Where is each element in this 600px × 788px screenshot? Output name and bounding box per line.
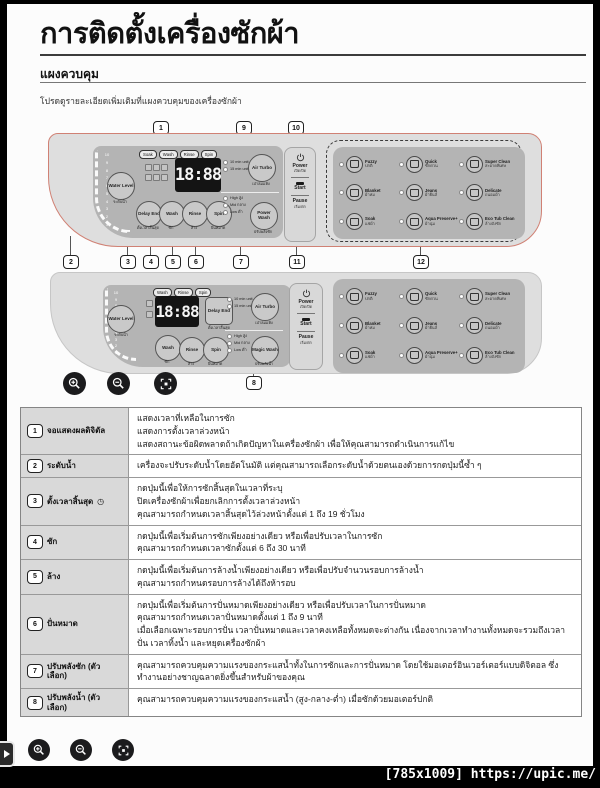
program-icon: [406, 317, 423, 334]
led-item: Mid กลาง: [223, 203, 246, 208]
start-pause-sub: เริ่ม/พัก: [294, 206, 306, 210]
section-divider: [40, 82, 586, 83]
program-icon: [406, 288, 423, 305]
program-sub: ผ้านุ่ม: [425, 355, 458, 359]
led-dot: [459, 323, 464, 328]
control-description: กดปุ่มนี้เพื่อเริ่มต้นการล้างน้ำเพียงอย่…: [129, 560, 581, 594]
led-item: 10 min unit: [227, 297, 253, 302]
program-button: Delicateถนอมผ้า: [459, 184, 519, 201]
led-dot: [459, 353, 464, 358]
led-item: 15 min unit: [227, 304, 253, 309]
callout-badge: 6: [27, 617, 43, 631]
program-sub: ผ้ายีนส์: [425, 193, 437, 197]
program-button: Soakแช่ผ้า: [339, 213, 399, 230]
program-sub: ปกติ: [365, 164, 377, 168]
zoom-out-button-bottom[interactable]: [70, 739, 92, 761]
led-dot: [399, 294, 404, 299]
water-level-number: 10: [114, 291, 118, 295]
control-divider: [221, 192, 279, 193]
rinse-sub: ล้าง: [179, 362, 203, 366]
watermark: [785x1009] https://upic.me/: [385, 767, 596, 782]
water-level-number: 3: [115, 338, 117, 342]
control-name: ล้าง: [47, 572, 60, 582]
table-row: 2 ระดับน้ำ เครื่องจะปรับระดับน้ำโดยอัตโน…: [21, 454, 581, 477]
control-area: 10987654321 Water Level ระดับน้ำ WashRin…: [103, 285, 291, 367]
led-item: Mid กลาง: [227, 341, 250, 346]
start-divider: [291, 195, 309, 196]
program-button: Super Cleanสะอาดพิเศษ: [459, 288, 519, 305]
table-row: 7 ปรับพลังซัก (ตัวเลือก) คุณสามารถควบคุม…: [21, 654, 581, 689]
image-viewer: การติดตั้งเครื่องซักผ้า แผงควบคุม โปรดดู…: [0, 0, 600, 788]
fit-screen-icon: [117, 744, 130, 757]
table-row: 6 ปั่นหมาด กดปุ่มนี้เพื่อเริ่มต้นการปั่น…: [21, 594, 581, 654]
air-turbo-sub: เป่าลมแห้ง: [243, 182, 279, 186]
table-row: 1 จอแสดงผลดิจิตัล แสดงเวลาที่เหลือในการซ…: [21, 408, 581, 454]
water-level-number: 3: [106, 207, 108, 211]
program-sub: ล้างถังซัก: [485, 355, 515, 359]
fit-screen-icon: [159, 377, 173, 391]
program-icon: [406, 213, 423, 230]
program-icon: [406, 156, 423, 173]
program-button: Blanketผ้าห่ม: [339, 317, 399, 334]
control-name: ซัก: [47, 537, 57, 547]
wash-sub: ซัก: [155, 360, 179, 364]
program-icon: [346, 317, 363, 334]
zoom-out-icon: [111, 376, 126, 391]
water-level-number: 2: [106, 215, 108, 219]
rinse-sub: ล้าง: [182, 226, 206, 230]
zoom-in-button[interactable]: [63, 372, 86, 395]
water-level-sub: ระดับน้ำ: [103, 333, 139, 337]
water-level-number: 10: [105, 153, 109, 157]
callout-8: 8: [246, 376, 262, 390]
status-pill: Soak: [139, 150, 157, 159]
callout-badge: 4: [27, 535, 43, 549]
indicator-icon: [161, 174, 168, 181]
table-label-cell: 8 ปรับพลังน้ำ (ตัวเลือก): [21, 689, 129, 716]
spin-sub: ปั่นหมาด: [202, 362, 228, 366]
led-dot: [339, 190, 344, 195]
magic-wash-button: Magic Wash: [251, 336, 279, 364]
program-sub: ซักด่วน: [425, 164, 438, 168]
program-button: Blanketผ้าห่ม: [339, 184, 399, 201]
zoom-in-icon: [67, 376, 82, 391]
led-dot: [399, 162, 404, 167]
callout-line: [70, 236, 71, 255]
power-sub: เปิด/ปิด: [300, 306, 312, 310]
indicator-icons: [146, 300, 151, 318]
callout-badge: 3: [27, 494, 43, 508]
program-sub: ผ้านุ่ม: [425, 222, 458, 226]
callout-3: 3: [120, 255, 136, 269]
led-label: 10 min unit: [234, 298, 253, 302]
table-row: 4 ซัก กดปุ่มนี้เพื่อเริ่มต้นการซักเพียงอ…: [21, 525, 581, 560]
callout-4: 4: [143, 255, 159, 269]
led-dot: [227, 341, 232, 346]
led-item: 15 min unit: [223, 167, 249, 172]
callout-badge: 5: [27, 570, 43, 584]
power-icon: [296, 153, 305, 162]
rinse-button: Rinse: [179, 337, 205, 363]
magic-wash-sub: ปรับพลังน้ำ: [247, 362, 281, 366]
program-icon: [346, 347, 363, 364]
program-icon: [466, 156, 483, 173]
table-label-cell: 7 ปรับพลังซัก (ตัวเลือก): [21, 655, 129, 689]
indicator-icons: [145, 164, 166, 181]
led-item: Low ต่ำ: [223, 210, 246, 215]
program-button: Fuzzyปกติ: [339, 288, 399, 305]
led-dot: [223, 210, 228, 215]
fit-screen-button-bottom[interactable]: [112, 739, 134, 761]
water-level-number: 2: [115, 344, 117, 348]
table-label-cell: 1 จอแสดงผลดิจิตัล: [21, 408, 129, 454]
fit-screen-button[interactable]: [154, 372, 177, 395]
water-level-number: 8: [106, 169, 108, 173]
program-button: Quickซักด่วน: [399, 156, 459, 173]
air-turbo-leds: 10 min unit15 min unit: [223, 160, 249, 172]
callout-11: 11: [289, 255, 305, 269]
program-sub: ผ้าห่ม: [365, 326, 381, 330]
control-description: แสดงเวลาที่เหลือในการซัก แสดงการตั้งเวลา…: [129, 408, 581, 454]
manual-page: การติดตั้งเครื่องซักผ้า แผงควบคุม โปรดดู…: [7, 4, 593, 766]
control-name: ปรับพลังซัก (ตัวเลือก): [47, 662, 120, 681]
indicator-icon: [145, 164, 152, 171]
led-dot: [223, 203, 228, 208]
control-name: ระดับน้ำ: [47, 461, 76, 471]
program-button: Eco Tub Cleanล้างถังซัก: [459, 213, 519, 230]
program-sub: แช่ผ้า: [365, 355, 375, 359]
power-section: Power เปิด/ปิด Start Pause เริ่ม/พัก: [289, 283, 323, 370]
air-turbo-button: Air Turbo: [251, 293, 279, 321]
program-button: Eco Tub Cleanล้างถังซัก: [459, 347, 519, 364]
callout-7: 7: [233, 255, 249, 269]
callout-6: 6: [188, 255, 204, 269]
control-description: คุณสามารถควบคุมความแรงของกระแสน้ำ (สูง-ก…: [129, 689, 581, 716]
control-panel-diagram-1: 10987654321 Water Level ระดับน้ำ SoakWas…: [48, 133, 542, 247]
program-icon: [346, 288, 363, 305]
title-divider: [40, 54, 586, 56]
program-button: Jeansผ้ายีนส์: [399, 184, 459, 201]
led-item: 10 min unit: [223, 160, 249, 165]
table-label-cell: 3 ตั้งเวลาสิ้นสุด ◷: [21, 478, 129, 524]
start-divider: [297, 331, 315, 332]
program-icon: [406, 347, 423, 364]
program-sub: ผ้ายีนส์: [425, 326, 437, 330]
air-turbo-leds: 10 min unit15 min unit: [227, 297, 253, 309]
spin-sub: ปั่นหมาด: [205, 226, 231, 230]
led-dot: [459, 162, 464, 167]
led-dot: [227, 304, 232, 309]
digital-display: 18:88: [175, 158, 221, 192]
pause-label: Pause: [299, 335, 314, 340]
intro-text: โปรดดูรายละเอียดเพิ่มเติมที่แผงควบคุมของ…: [40, 94, 242, 108]
indicator-icon: [145, 174, 152, 181]
magic-wash-leds: High สูงMid กลางLow ต่ำ: [227, 334, 250, 353]
program-icon: [406, 184, 423, 201]
program-button: Quickซักด่วน: [399, 288, 459, 305]
led-item: Low ต่ำ: [227, 348, 250, 353]
control-description: คุณสามารถควบคุมความแรงของกระแสน้ำทั้งในก…: [129, 655, 581, 689]
wash-sub: ซัก: [159, 226, 183, 230]
led-dot: [399, 190, 404, 195]
program-sub: แช่ผ้า: [365, 222, 375, 226]
water-level-button: Water Level: [107, 305, 135, 333]
table-label-cell: 4 ซัก: [21, 526, 129, 560]
water-level-button: Water Level: [107, 172, 135, 200]
led-item: High สูง: [223, 196, 246, 201]
program-button: Super Cleanสะอาดพิเศษ: [459, 156, 519, 173]
program-sub: ซักด่วน: [425, 297, 438, 301]
clock-icon: ◷: [97, 497, 104, 506]
power-wash-leds: High สูงMid กลางLow ต่ำ: [223, 196, 246, 215]
program-button: Delicateถนอมผ้า: [459, 317, 519, 334]
program-grid: Fuzzyปกติ Quickซักด่วน Super Cleanสะอาดพ…: [333, 279, 525, 373]
led-dot: [399, 219, 404, 224]
program-button: Aqua Preserve+ผ้านุ่ม: [399, 213, 459, 230]
program-icon: [466, 317, 483, 334]
callout-badge: 7: [27, 664, 43, 678]
program-grid: Fuzzyปกติ Quickซักด่วน Super Cleanสะอาดพ…: [333, 147, 525, 239]
program-icon: [466, 184, 483, 201]
program-sub: สะอาดพิเศษ: [485, 297, 510, 301]
digital-display: 18:88: [155, 296, 199, 327]
program-icon: [346, 156, 363, 173]
program-button: Soakแช่ผ้า: [339, 347, 399, 364]
callout-12: 12: [413, 255, 429, 269]
table-row: 3 ตั้งเวลาสิ้นสุด ◷ กดปุ่มนี้เพื่อให้การ…: [21, 477, 581, 524]
indicator-icon: [153, 164, 160, 171]
controls-description-table: 1 จอแสดงผลดิจิตัล แสดงเวลาที่เหลือในการซ…: [20, 407, 582, 717]
start-pause-sub: เริ่ม/พัก: [300, 342, 312, 346]
program-sub: ล้างถังซัก: [485, 222, 515, 226]
program-icon: [466, 213, 483, 230]
status-pill: Wash: [159, 150, 178, 159]
table-row: 5 ล้าง กดปุ่มนี้เพื่อเริ่มต้นการล้างน้ำเ…: [21, 559, 581, 594]
control-name: จอแสดงผลดิจิตัล: [47, 426, 105, 436]
led-dot: [223, 160, 228, 165]
table-label-cell: 2 ระดับน้ำ: [21, 455, 129, 477]
led-dot: [227, 297, 232, 302]
water-level-sub: ระดับน้ำ: [99, 200, 141, 204]
rinse-button: Rinse: [182, 201, 208, 227]
led-dot: [339, 162, 344, 167]
callout-badge: 8: [27, 696, 43, 710]
zoom-out-button[interactable]: [107, 372, 130, 395]
power-sub: เปิด/ปิด: [294, 170, 306, 174]
table-label-cell: 5 ล้าง: [21, 560, 129, 594]
start-label: Start: [300, 322, 311, 327]
program-icon: [346, 184, 363, 201]
callout-2: 2: [63, 255, 79, 269]
program-button: Fuzzyปกติ: [339, 156, 399, 173]
zoom-in-icon: [32, 743, 46, 757]
program-sub: ผ้าห่ม: [365, 193, 381, 197]
led-label: Mid กลาง: [234, 342, 250, 346]
water-level-number: 1: [115, 351, 117, 355]
control-name: ปั่นหมาด: [47, 619, 78, 629]
led-label: 15 min unit: [234, 305, 253, 309]
led-dot: [339, 353, 344, 358]
indicator-icon: [146, 300, 153, 307]
control-divider: [225, 330, 283, 331]
callout-badge: 1: [27, 424, 43, 438]
program-icon: [466, 288, 483, 305]
indicator-icon: [146, 311, 153, 318]
led-dot: [459, 190, 464, 195]
led-dot: [399, 323, 404, 328]
power-divider: [297, 313, 315, 314]
led-label: 15 min unit: [230, 168, 249, 172]
program-icon: [466, 347, 483, 364]
zoom-out-icon: [74, 743, 88, 757]
start-label: Start: [294, 186, 305, 191]
control-panel-diagram-2: 10987654321 Water Level ระดับน้ำ WashRin…: [50, 272, 542, 374]
table-label-cell: 6 ปั่นหมาด: [21, 595, 129, 654]
water-level-number: 9: [115, 298, 117, 302]
led-label: Mid กลาง: [230, 204, 246, 208]
control-description: กดปุ่มนี้เพื่อให้การซักสิ้นสุดในเวลาที่ร…: [129, 478, 581, 524]
power-label: Power: [298, 300, 313, 305]
led-label: 10 min unit: [230, 161, 249, 165]
zoom-in-button-bottom[interactable]: [28, 739, 50, 761]
water-level-number: 9: [106, 161, 108, 165]
control-description: กดปุ่มนี้เพื่อเริ่มต้นการซักเพียงอย่างเด…: [129, 526, 581, 560]
indicator-icon: [161, 164, 168, 171]
water-level-number: 1: [106, 223, 108, 227]
program-sub: ถนอมผ้า: [485, 193, 501, 197]
led-label: Low ต่ำ: [234, 349, 247, 353]
led-dot: [227, 334, 232, 339]
play-arrow-icon: [4, 750, 10, 758]
control-area: 10987654321 Water Level ระดับน้ำ SoakWas…: [93, 146, 283, 238]
led-dot: [339, 323, 344, 328]
control-name: ตั้งเวลาสิ้นสุด: [47, 497, 93, 507]
led-dot: [399, 353, 404, 358]
page-title: การติดตั้งเครื่องซักผ้า: [40, 10, 299, 56]
program-sub: สะอาดพิเศษ: [485, 164, 510, 168]
control-description: กดปุ่มนี้เพื่อเริ่มต้นการปั่นหมาดเพียงอย…: [129, 595, 581, 654]
led-dot: [223, 167, 228, 172]
power-icon: [302, 289, 311, 298]
air-turbo-button: Air Turbo: [248, 154, 276, 182]
led-label: High สูง: [230, 197, 243, 201]
power-divider: [291, 177, 309, 178]
led-dot: [339, 294, 344, 299]
program-button: Jeansผ้ายีนส์: [399, 317, 459, 334]
wash-button: Wash: [155, 335, 181, 361]
power-wash-button: Power Wash: [250, 202, 278, 230]
program-button: Aqua Preserve+ผ้านุ่ม: [399, 347, 459, 364]
led-dot: [227, 348, 232, 353]
spin-button: Spin: [203, 337, 229, 363]
program-icon: [346, 213, 363, 230]
power-section: Power เปิด/ปิด Start Pause เริ่ม/พัก: [284, 147, 316, 242]
control-description: เครื่องจะปรับระดับน้ำโดยอัตโนมัติ แต่คุณ…: [129, 455, 581, 477]
led-label: Low ต่ำ: [230, 211, 243, 215]
delay-end-sub: ตั้งเวลาสิ้นสุด: [135, 226, 161, 230]
power-label: Power: [292, 164, 307, 169]
led-dot: [459, 294, 464, 299]
power-wash-sub: ปรับพลังซัก: [245, 230, 281, 234]
led-dot: [339, 219, 344, 224]
indicator-icon: [153, 174, 160, 181]
air-turbo-sub: เป่าลมแห้ง: [247, 321, 281, 325]
control-name: ปรับพลังน้ำ (ตัวเลือก): [47, 693, 120, 712]
program-sub: ปกติ: [365, 297, 377, 301]
next-image-button[interactable]: [0, 741, 15, 767]
led-label: High สูง: [234, 335, 247, 339]
callout-badge: 2: [27, 459, 43, 473]
led-dot: [459, 219, 464, 224]
table-row: 8 ปรับพลังน้ำ (ตัวเลือก) คุณสามารถควบคุม…: [21, 688, 581, 716]
led-dot: [223, 196, 228, 201]
pause-label: Pause: [293, 199, 308, 204]
program-sub: ถนอมผ้า: [485, 326, 501, 330]
callout-5: 5: [165, 255, 181, 269]
led-item: High สูง: [227, 334, 250, 339]
